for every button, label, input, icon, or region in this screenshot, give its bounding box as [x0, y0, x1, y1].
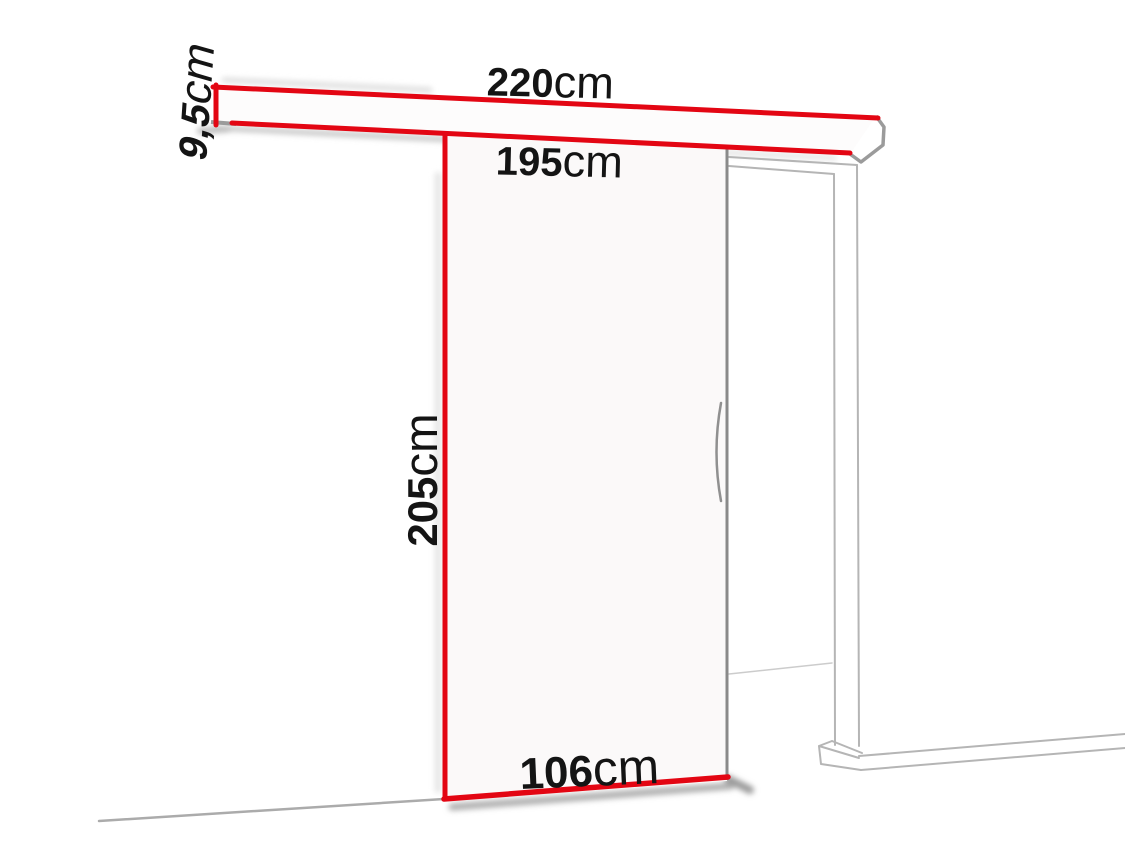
frame-jamb-inner-line: [834, 174, 835, 745]
rail-height-unit: cm: [170, 36, 224, 110]
frame-jamb-outer-line: [857, 165, 859, 746]
door-height-value: 205: [399, 477, 446, 547]
rail-length-label: 220cm: [486, 54, 614, 108]
doorway-floor-line: [729, 663, 832, 674]
frame-head-outer-line: [729, 157, 857, 165]
sliding-door: [443, 133, 728, 801]
floor-line: [99, 799, 444, 821]
skirting-top-line: [859, 734, 1125, 756]
door-dimension-diagram: 220cm 195cm 9,5cm 205cm 106cm: [0, 0, 1125, 844]
skirting-bottom-line: [861, 748, 1125, 770]
passage-width-label: 195cm: [495, 133, 623, 187]
door-height-unit: cm: [395, 413, 448, 476]
door-width-unit: cm: [592, 738, 661, 797]
door-panel: [443, 133, 727, 801]
frame-plinth: [819, 741, 862, 770]
passage-width-unit: cm: [562, 135, 624, 188]
frame-head-inner-line: [729, 166, 834, 174]
door-frame: [729, 157, 1125, 770]
passage-width-value: 195: [495, 139, 563, 185]
diagram-canvas: 220cm 195cm 9,5cm 205cm 106cm: [0, 0, 1125, 844]
door-height-label: 205cm: [395, 413, 448, 546]
rail-length-value: 220: [486, 60, 554, 106]
door-width-value: 106: [519, 747, 594, 799]
rail-length-unit: cm: [553, 56, 615, 109]
rail-height-label: 9,5cm: [166, 36, 224, 166]
